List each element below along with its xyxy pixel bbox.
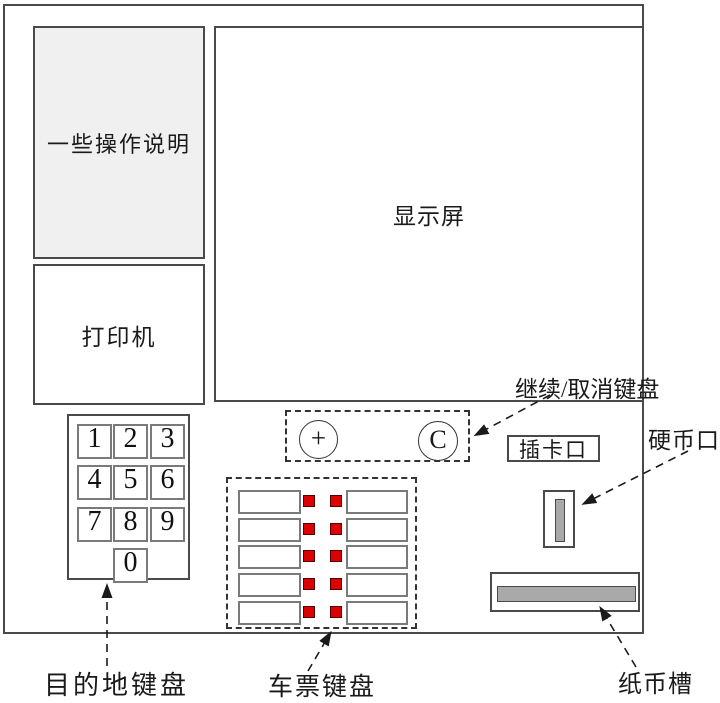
coin-slot: [543, 490, 575, 548]
key-5[interactable]: 5: [113, 465, 148, 500]
continue-button[interactable]: +: [299, 420, 338, 459]
destination-keypad-label: 目的地键盘: [44, 665, 189, 702]
printer-panel: 打印机: [33, 264, 205, 405]
instructions-panel: 一些操作说明: [33, 26, 205, 259]
banknote-slot: [490, 572, 640, 612]
key-6[interactable]: 6: [150, 465, 185, 500]
ticket-button[interactable]: [346, 518, 408, 542]
machine-panel: 一些操作说明 打印机 显示屏 1 2 3 4 5 6 7 8 9 0 + C: [3, 4, 644, 634]
ticket-indicator-led: [303, 495, 315, 507]
continue-cancel-keypad-label: 继续/取消键盘: [515, 370, 659, 404]
ticket-button[interactable]: [238, 601, 301, 625]
ticket-key-row: [238, 490, 409, 510]
destination-keypad: 1 2 3 4 5 6 7 8 9 0: [67, 414, 190, 580]
ticket-indicator-led: [303, 578, 315, 590]
display-label: 显示屏: [393, 197, 465, 231]
ticket-indicator-led: [330, 550, 342, 562]
ticket-indicator-led: [303, 523, 315, 535]
key-1[interactable]: 1: [77, 424, 112, 459]
ticket-button[interactable]: [238, 545, 301, 569]
instructions-label: 一些操作说明: [47, 127, 191, 159]
ticket-indicator-led: [330, 495, 342, 507]
ticket-keypad: [226, 477, 417, 629]
key-8[interactable]: 8: [113, 507, 148, 542]
key-9[interactable]: 9: [150, 507, 185, 542]
key-0[interactable]: 0: [113, 548, 148, 583]
card-slot: 插卡口: [507, 435, 600, 462]
key-7[interactable]: 7: [77, 507, 112, 542]
ticket-key-row: [238, 573, 409, 593]
printer-label: 打印机: [82, 318, 157, 352]
ticket-key-row: [238, 601, 409, 621]
ticket-indicator-led: [303, 606, 315, 618]
ticket-button[interactable]: [238, 518, 301, 542]
coin-slot-opening: [555, 499, 565, 542]
ticket-keypad-label: 车票键盘: [268, 667, 376, 703]
ticket-button[interactable]: [238, 490, 301, 514]
display-screen: 显示屏: [214, 26, 644, 402]
key-2[interactable]: 2: [113, 424, 148, 459]
ticket-button[interactable]: [346, 573, 408, 597]
ticket-button[interactable]: [346, 601, 408, 625]
ticket-indicator-led: [330, 523, 342, 535]
ticket-indicator-led: [303, 550, 315, 562]
key-4[interactable]: 4: [77, 465, 112, 500]
ticket-button[interactable]: [238, 573, 301, 597]
ticket-key-row: [238, 545, 409, 565]
ticket-indicator-led: [330, 578, 342, 590]
ticket-key-row: [238, 518, 409, 538]
ticket-indicator-led: [330, 606, 342, 618]
cancel-button[interactable]: C: [418, 421, 458, 461]
key-3[interactable]: 3: [150, 424, 185, 459]
continue-cancel-keypad: + C: [285, 410, 470, 462]
banknote-slot-opening: [497, 586, 636, 602]
coin-slot-label: 硬币口: [648, 421, 720, 455]
ticket-button[interactable]: [346, 490, 408, 514]
ticket-button[interactable]: [346, 545, 408, 569]
banknote-slot-label: 纸币槽: [618, 664, 693, 699]
card-slot-label: 插卡口: [519, 434, 588, 464]
